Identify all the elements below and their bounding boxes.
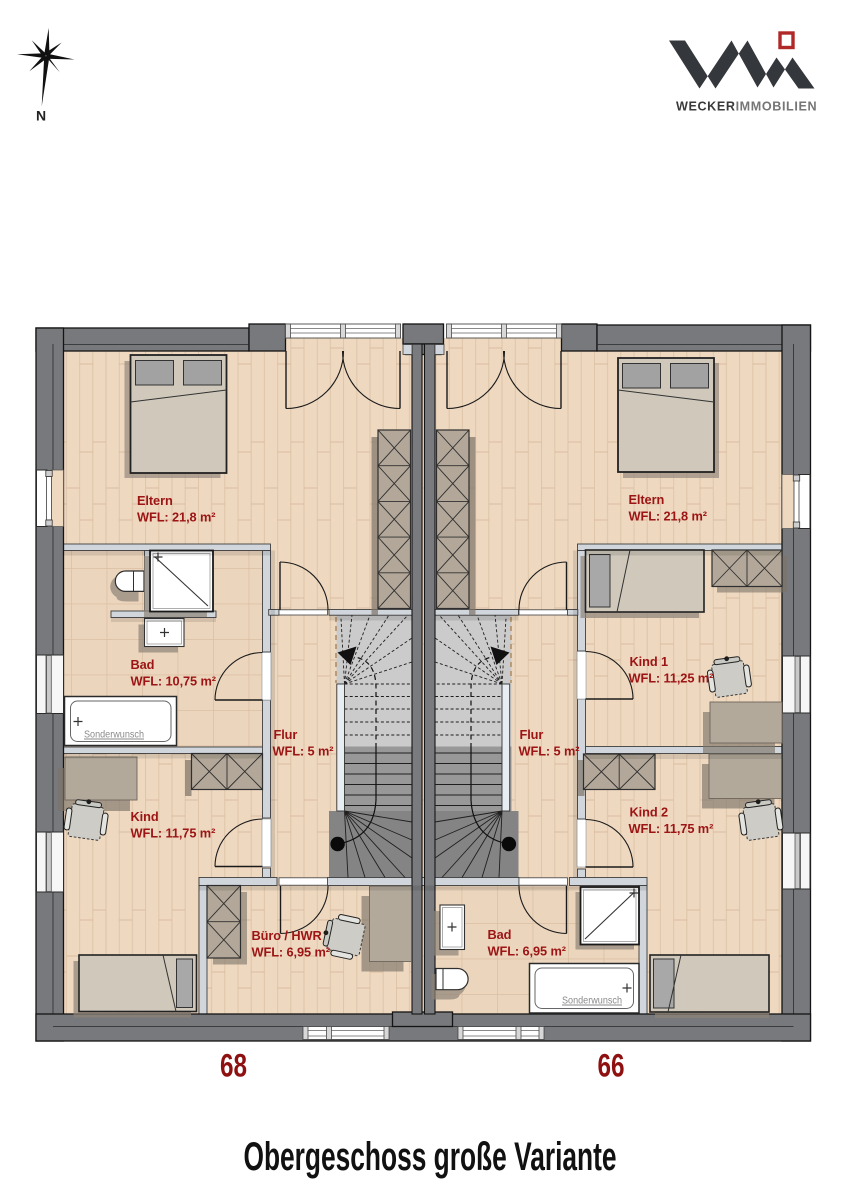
svg-text:Kind 2: Kind 2 (630, 805, 669, 820)
svg-text:Sonderwunsch: Sonderwunsch (562, 996, 622, 1007)
svg-text:Obergeschoss große Variante: Obergeschoss große Variante (244, 1135, 617, 1179)
svg-text:WFL: 10,75 m²: WFL: 10,75 m² (131, 674, 216, 689)
svg-text:Flur: Flur (274, 727, 298, 742)
svg-text:WFL: 11,75 m²: WFL: 11,75 m² (131, 826, 216, 841)
svg-text:68: 68 (220, 1048, 247, 1084)
svg-text:WFL: 6,95 m²: WFL: 6,95 m² (488, 944, 566, 959)
svg-text:WFL: 21,8 m²: WFL: 21,8 m² (137, 510, 215, 525)
svg-text:WFL: 11,75 m²: WFL: 11,75 m² (629, 821, 714, 836)
svg-text:Eltern: Eltern (629, 492, 665, 507)
svg-text:N: N (36, 108, 46, 124)
svg-text:Kind 1: Kind 1 (630, 654, 669, 669)
svg-text:WFL: 6,95 m²: WFL: 6,95 m² (252, 945, 330, 960)
svg-text:Büro / HWR: Büro / HWR (252, 928, 322, 943)
svg-text:66: 66 (598, 1048, 625, 1084)
svg-text:WFL: 11,25 m²: WFL: 11,25 m² (629, 671, 714, 686)
svg-text:Flur: Flur (520, 727, 544, 742)
svg-text:WFL: 5 m²: WFL: 5 m² (273, 744, 334, 759)
svg-text:Kind: Kind (131, 809, 159, 824)
svg-text:WFL: 21,8 m²: WFL: 21,8 m² (629, 509, 707, 524)
svg-text:Bad: Bad (488, 927, 512, 942)
svg-text:Eltern: Eltern (137, 493, 173, 508)
svg-text:WECKERIMMOBILIEN: WECKERIMMOBILIEN (676, 100, 817, 114)
svg-text:Sonderwunsch: Sonderwunsch (84, 730, 144, 741)
svg-text:Bad: Bad (131, 657, 155, 672)
svg-text:WFL: 5 m²: WFL: 5 m² (519, 744, 580, 759)
